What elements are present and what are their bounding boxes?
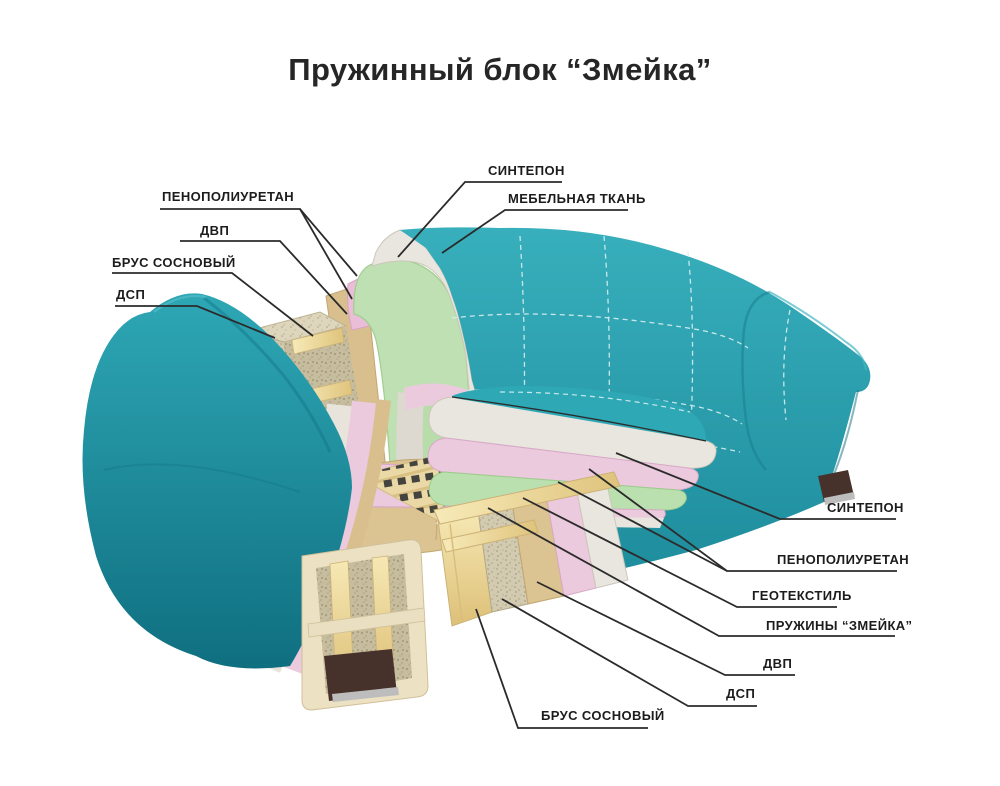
label-mebelnaya-tkan: МЕБЕЛЬНАЯ ТКАНЬ [508,192,646,205]
label-sintepon-right: СИНТЕПОН [827,501,904,514]
leader-dsp-right [502,599,757,706]
label-penopoliuretan-right: ПЕНОПОЛИУРЕТАН [777,553,909,566]
page-title: Пружинный блок “Змейка” [0,52,1000,88]
label-dvp-left: ДВП [200,224,229,237]
label-penopoliuretan-left: ПЕНОПОЛИУРЕТАН [162,190,294,203]
label-dvp-right: ДВП [763,657,792,670]
label-geotekstil: ГЕОТЕКСТИЛЬ [752,589,852,602]
leader-penopoliuretan-left-branch [300,209,352,299]
label-dsp-left: ДСП [116,288,145,301]
diagram-canvas: Пружинный блок “Змейка” ПЕНОПОЛИУРЕТАН Д… [0,0,1000,786]
label-brus-sosnovyj-left: БРУС СОСНОВЫЙ [112,256,236,269]
sofa-cutaway-illustration [0,0,1000,786]
label-brus-sosnovyj-right: БРУС СОСНОВЫЙ [541,709,665,722]
label-pruzhiny-zmejka: ПРУЖИНЫ “ЗМЕЙКА” [766,619,912,632]
label-sintepon-top: СИНТЕПОН [488,164,565,177]
label-dsp-right: ДСП [726,687,755,700]
